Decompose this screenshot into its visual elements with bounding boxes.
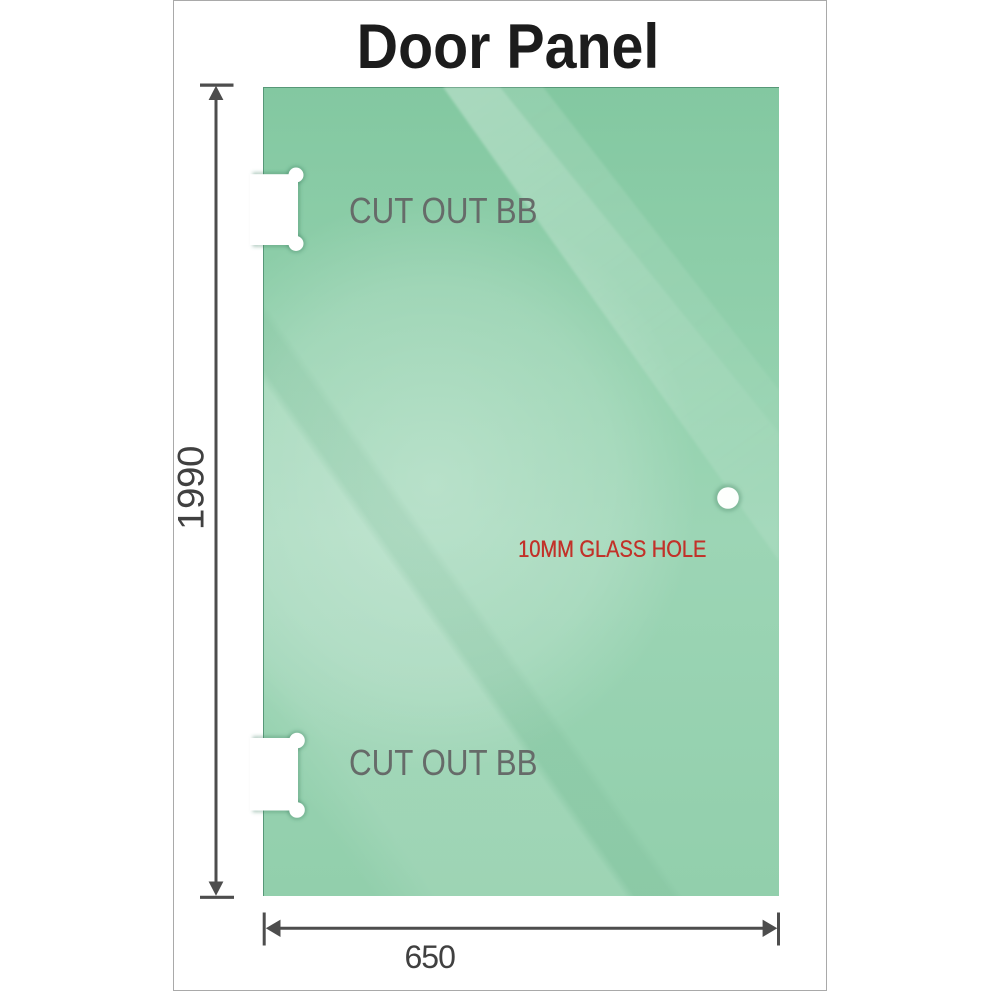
svg-text:1990: 1990 [170, 446, 211, 530]
svg-text:650: 650 [405, 939, 456, 975]
